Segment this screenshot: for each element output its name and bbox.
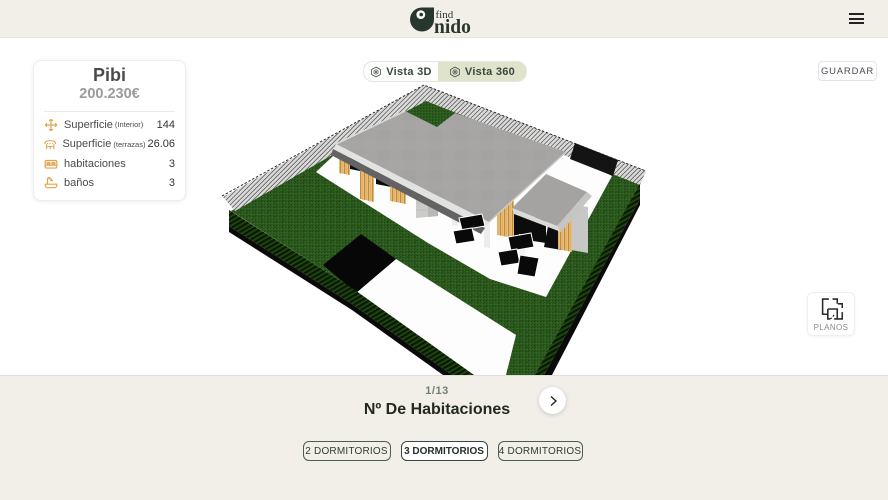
svg-text:nido: nido bbox=[434, 17, 471, 35]
